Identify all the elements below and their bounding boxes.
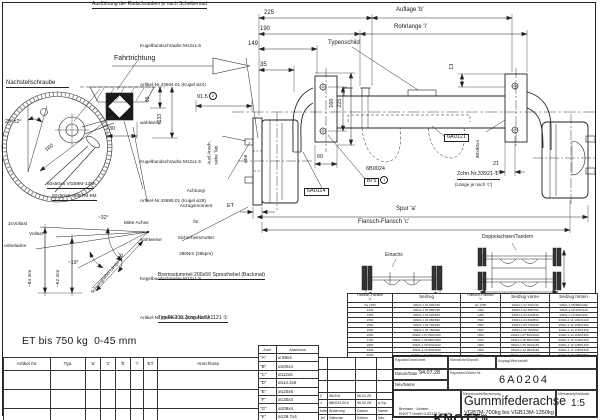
typenschild-label: Typenschild <box>328 40 360 46</box>
position-mark-1: 1 <box>380 176 388 184</box>
axle-table-empty-cell <box>101 390 116 409</box>
revision-cell: 96.01.25 <box>356 392 377 399</box>
date-value: '94.07.28 <box>418 371 440 377</box>
revision-empty-cell <box>328 369 356 381</box>
load-unbeladen-label: unbeladen <box>4 244 26 249</box>
part-label-6A0114: 6A0114 <box>304 188 329 196</box>
revision-cell: Datum <box>356 407 377 414</box>
revision-cell: 96.02.28 <box>356 400 377 407</box>
revision-empty-cell <box>328 381 356 393</box>
axle-table-empty-cell <box>86 371 101 390</box>
spec-line-et: ET bis 750 kg 0-45 mm <box>22 336 180 348</box>
revision-row: 296/31996.01.25 <box>319 392 393 399</box>
anschluss-cell: "D" <box>259 379 277 387</box>
revision-empty-cell <box>328 358 356 370</box>
einachs-label: Einachs <box>385 253 403 258</box>
part-label-bl5: Bl 51 <box>364 176 388 186</box>
note-line: Kugelbundschraube M12x1.5 <box>140 159 209 164</box>
axle-table-header: Artikel Nr.Typ.'a''c''b''i'ETAnschluss <box>4 358 259 371</box>
dim-21: 21 <box>493 162 499 168</box>
dim-13: 13 <box>450 64 456 70</box>
revision-empty-row <box>319 358 393 370</box>
adjuster-screw-label: Nachstellschraube <box>6 80 69 88</box>
anschluss-cell: ø 98x4 <box>277 354 319 362</box>
anschluss-cell: ø120x5 <box>277 387 319 395</box>
drawing-number-label: Rajzszám/Zeichn.Nr. <box>450 371 481 375</box>
checked-by-cell: Ellenőrizte/Geprüft <box>448 356 496 369</box>
revision-row: 16B0024 Bl 596.02.28A.Sp. <box>319 400 393 407</box>
anschluss-cell: ø100x4 <box>277 362 319 370</box>
anschluss-row: "F"ø130x4 <box>259 395 319 403</box>
scale-value: 1:5 <box>557 399 599 410</box>
drawn-by-cell: Rajzolta/Gezeichnet <box>393 356 448 369</box>
cable-length-note: (Länge je nach 'c') <box>455 183 492 188</box>
dim-225-top: 225 <box>264 10 274 16</box>
revision-cell: 96/319 <box>328 392 356 399</box>
mitte-achse-label: Mitte Achse <box>124 221 149 226</box>
revision-empty-cell <box>319 381 328 393</box>
revision-empty-row <box>319 369 393 381</box>
cable-table-header: Flansch-Flansch'c' Seilzug Flansch-Flans… <box>348 294 598 303</box>
revision-empty-cell <box>319 369 328 381</box>
name-label: Név/Name <box>395 383 415 387</box>
axle-table-col: ET <box>144 358 158 371</box>
tandem-schematic <box>478 243 564 292</box>
spur-a-label: Spur 'a' <box>396 206 416 212</box>
anschluss-row: "D"ø114.3x5 <box>259 379 319 387</box>
load-diagram <box>36 224 149 296</box>
revision-empty-row <box>319 381 393 393</box>
axle-variants-table: Artikel Nr.Typ.'a''c''b''i'ETAnschluss <box>3 357 259 420</box>
anschluss-cell: "A" <box>259 354 277 362</box>
axle-table-empty-cell <box>51 390 86 409</box>
part-label-6A0121: 6A0121 <box>444 134 469 142</box>
revision-table: 296/31996.01.2516B0024 Bl 596.02.28A.Sp.… <box>318 357 393 420</box>
anschluss-cell: "C" <box>259 370 277 378</box>
axle-table-empty-cell <box>86 409 101 420</box>
axle-table-empty-cell <box>116 390 131 409</box>
dim-56: ø56 <box>244 155 249 163</box>
axle-table-col: Artikel Nr. <box>4 358 51 371</box>
revision-cell: Index <box>319 407 328 414</box>
dim-160-vertical: 160 <box>330 99 336 108</box>
note-line: Artikel-Nr.43694.01 (Kugel ø24) <box>140 82 209 87</box>
axle-table-col: Anschluss <box>158 358 259 371</box>
warning-line: Achtung! <box>160 188 232 193</box>
revision-cell: 6B0024 Bl 5 <box>328 400 356 407</box>
revision-cell: 1 <box>319 400 328 407</box>
profile-label-1: 50x50x6 VGB9M-13M <box>47 182 94 189</box>
drawing-number-cell: Rajzszám/Zeichn.Nr. 6A0204 <box>448 369 598 390</box>
col-flansch-2: Flansch-Flansch'c' <box>461 294 501 303</box>
part-name: Gummifederachse <box>464 395 566 408</box>
cable-drawing-number: Zchn.Nr.33921-1. <box>457 172 500 180</box>
dim-91-5: 91.52 <box>197 92 217 101</box>
revision-empty-cell <box>356 358 377 370</box>
anschluss-cell: "G" <box>259 404 277 412</box>
axle-table-empty-cell <box>158 390 259 409</box>
col-seilzug-hinten: Seilzug hinten <box>550 294 598 303</box>
revision-row: IndexÄnderungDatumName <box>319 407 393 414</box>
anschluss-cell: ø114.3x5 <box>277 379 319 387</box>
warning-line: für <box>160 219 232 224</box>
dim-190: 190 <box>260 26 270 32</box>
dim-30: 30 <box>109 127 115 133</box>
dim-52mm: ~52 mm <box>56 270 61 287</box>
part-label-6B0024: 6B0024 <box>366 167 385 173</box>
revision-cell: Jel <box>319 414 328 420</box>
revision-empty-cell <box>356 369 377 381</box>
note-line: wahlweise <box>140 120 209 125</box>
revision-empty-cell <box>319 358 328 370</box>
anschluss-row: "B"ø100x4 <box>259 362 319 370</box>
einachs-schematic <box>362 259 442 297</box>
axle-table-empty-cell <box>144 371 158 390</box>
name-cell: Név/Name <box>393 380 448 391</box>
angle-19-dim: ~19° <box>68 261 78 266</box>
revision-cell <box>377 392 393 399</box>
dim-60: 60 <box>317 155 323 161</box>
dim-80x80: 80x80x4 <box>476 140 481 158</box>
axle-table-empty-cell <box>131 371 144 390</box>
checked-by-label: Ellenőrizte/Geprüft <box>450 358 478 362</box>
revision-table-body: 296/31996.01.2516B0024 Bl 596.02.28A.Sp.… <box>319 358 393 420</box>
axle-table-empty-cell <box>4 371 51 390</box>
col-seilzug: Seilzug <box>393 294 461 303</box>
anschluss-cell: ø108x4 <box>277 404 319 412</box>
revision-cell: Änderung <box>328 407 356 414</box>
siehe-tab-label: siehe Tab. <box>214 145 219 165</box>
anschluss-header: Anschluss <box>277 346 319 354</box>
dim-65: 65 <box>146 97 151 103</box>
title-block: Rajzolta/Gezeichnet Ellenőrizte/Geprüft … <box>392 355 597 417</box>
bl5-box: Bl 5 <box>364 178 379 186</box>
material-cell: Anyag/Werkstoff: <box>496 356 598 369</box>
axle-table-empty-cell <box>101 409 116 420</box>
date-label: Datum/Date <box>395 372 417 376</box>
flansch-c-label: Flansch-Flansch 'c' <box>358 219 409 225</box>
angle-32-dim: ~32° <box>98 216 108 221</box>
et-label: ET <box>227 204 234 210</box>
load-2x-label: 2xVollast <box>8 222 27 227</box>
axle-table-empty-cell <box>158 371 259 390</box>
auflage-b-label: Auflage 'b' <box>396 7 424 13</box>
axle-table-empty-cell <box>4 390 51 409</box>
axle-table-body <box>4 371 259 420</box>
note-line: Kugelbundschraube M12x1.5 <box>140 43 209 48</box>
axle-table-empty-cell <box>51 371 86 390</box>
dim-133: ~133 <box>158 114 163 125</box>
tandem-label: Doppelachsen/Tandem <box>482 235 533 240</box>
dim-35: 35 <box>260 62 267 68</box>
axle-table-empty-cell <box>101 371 116 390</box>
brake-note-line: Bremsstummel 200x50 Spreizhebel (Backmat… <box>158 273 265 280</box>
axle-table-col: 'b' <box>116 358 131 371</box>
anschluss-cell: "E" <box>259 387 277 395</box>
anschluss-row: "K"ø139.7x4 <box>259 412 319 420</box>
axle-table-empty-cell <box>116 371 131 390</box>
axle-table-col: 'a' <box>86 358 101 371</box>
axle-table-row <box>4 390 259 409</box>
anschluss-row: "E"ø120x5 <box>259 387 319 395</box>
revision-row: JelVáltozásDátumNév <box>319 414 393 420</box>
axle-table-empty-cell <box>131 390 144 409</box>
anschluss-cell: "F" <box>259 395 277 403</box>
revision-empty-cell <box>356 381 377 393</box>
col-seilzug-vorne: Seilzug vorne <box>501 294 550 303</box>
axle-table-empty-cell <box>86 390 101 409</box>
axle-table-empty-cell <box>51 409 86 420</box>
anschluss-row: "G"ø108x4 <box>259 404 319 412</box>
axle-table-empty-cell <box>131 409 144 420</box>
axle-table-col: 'c' <box>101 358 116 371</box>
axle-table-col: 'i' <box>131 358 144 371</box>
anschluss-cell: "B" <box>259 362 277 370</box>
anschluss-row: "A"ø 98x4 <box>259 354 319 362</box>
load-voll-label: Vollast <box>29 232 43 237</box>
axle-table-col: Typ. <box>51 358 86 371</box>
anschluss-cell: ø139.7x4 <box>277 412 319 420</box>
anschluss-cell: ø130x4 <box>277 395 319 403</box>
axle-table-empty-cell <box>116 409 131 420</box>
axle-table-empty-cell <box>158 409 259 420</box>
revision-cell: Név <box>377 414 393 420</box>
warning-line: Anzugsmoment <box>160 203 232 208</box>
position-mark-2: 2 <box>209 92 217 100</box>
revision-cell: A.Sp. <box>377 400 393 407</box>
part-name-range: VGB7M-700kg bis VGB13M-1350kg <box>464 411 554 417</box>
direction-label: Fahrtrichtung <box>114 55 155 62</box>
dim-91-5-value: 91.5 <box>197 94 208 100</box>
anschluss-table-body: "A"ø 98x4"B"ø100x4"C"ø112x5"D"ø114.3x5"E… <box>259 354 319 420</box>
dim-84mm: ~84 mm <box>28 270 33 287</box>
angle-25-dim: 25°±2° <box>5 120 22 126</box>
revision-empty-cell <box>377 381 393 393</box>
dim-149: 149 <box>248 41 258 47</box>
revision-cell: Dátum <box>356 414 377 420</box>
revision-cell: Name <box>377 407 393 414</box>
part-name-cell: Megnevezés/Benennung Gummifederachse VGB… <box>461 390 556 418</box>
profile-label-2: 50x50x5 VGB7M-8M <box>52 194 97 201</box>
anschluss-row: "C"ø112x5 <box>259 370 319 378</box>
anschluss-cell: "K" <box>259 412 277 420</box>
brand-address: KNOTT GmbH D-83125 Eggstätt <box>399 413 451 417</box>
technical-drawing-sheet: Ausführung der Radschrauben je nach Sche… <box>0 0 600 420</box>
axle-table-row <box>4 409 259 420</box>
drawing-number: 6A0204 <box>449 375 599 387</box>
anschluss-table: Ausf. Anschluss "A"ø 98x4"B"ø100x4"C"ø11… <box>258 345 319 420</box>
brand-cell: KNOTT))) Bremsen · Achsen KNOTT GmbH D-8… <box>393 390 461 418</box>
date-cell: Datum/Date '94.07.28 <box>393 369 448 380</box>
scale-cell: Méretarány/Maßstab 1:5 <box>556 390 598 418</box>
col-flansch-1: Flansch-Flansch'c' <box>348 294 393 303</box>
axle-table-empty-cell <box>144 409 158 420</box>
material-label: Anyag/Werkstoff: <box>498 358 528 363</box>
anschluss-cell: ø112x5 <box>277 370 319 378</box>
dim-225-vertical: 225 <box>338 99 344 108</box>
scale-label: Méretarány/Maßstab <box>558 392 589 396</box>
rohrlange-i-label: Rohrlange 'i' <box>394 24 427 30</box>
revision-empty-cell <box>377 369 393 381</box>
revision-cell: Változás <box>328 414 356 420</box>
drawn-by-label: Rajzolta/Gezeichnet <box>395 358 425 362</box>
ausf-header: Ausf. <box>259 346 277 354</box>
ausf-ansch-label: Ausf.Ansch. <box>207 141 212 164</box>
revision-empty-cell <box>377 358 393 370</box>
axle-table-empty-cell <box>4 409 51 420</box>
axle-table-row <box>4 371 259 390</box>
axle-table-empty-cell <box>144 390 158 409</box>
revision-cell: 2 <box>319 392 328 399</box>
